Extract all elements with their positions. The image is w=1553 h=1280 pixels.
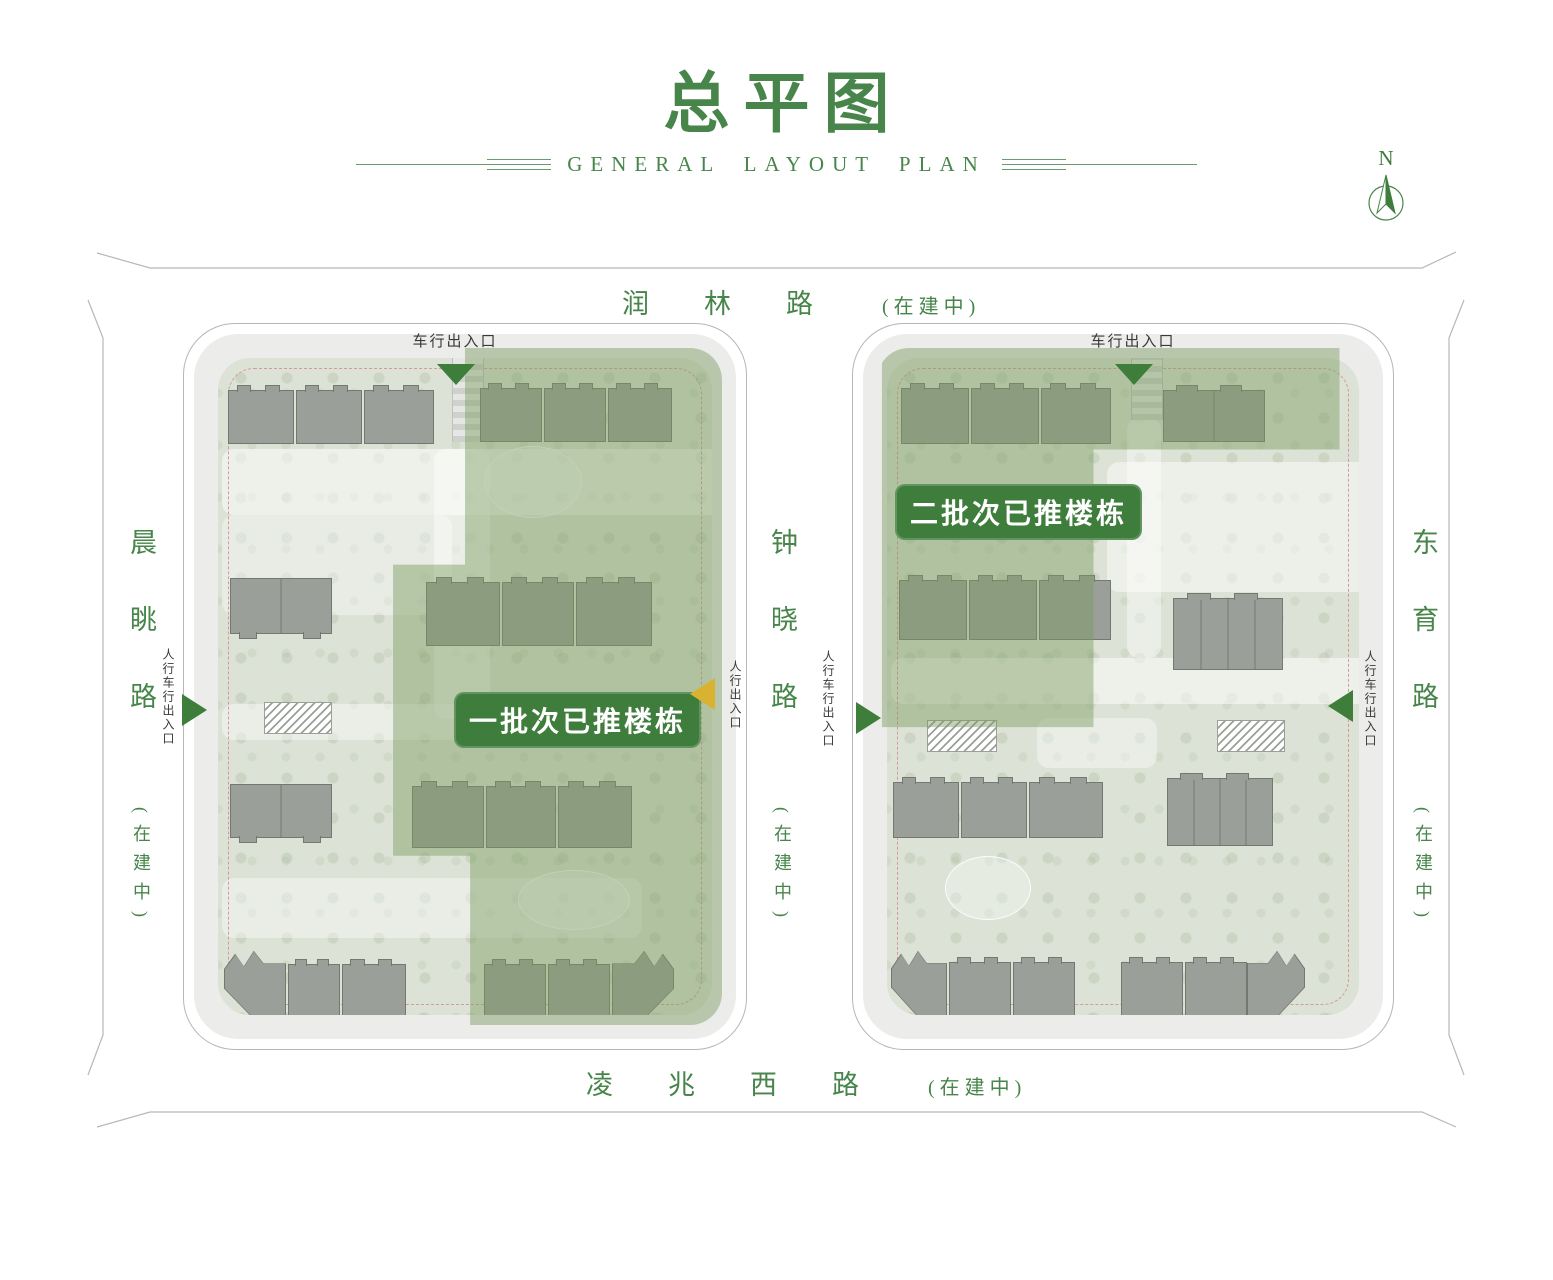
batch2-badge: 二批次已推楼栋	[895, 484, 1142, 540]
site-block-west: 一批次已推楼栋	[183, 323, 747, 1050]
building	[230, 578, 332, 634]
entrance-label-pedestrian: 人行出入口	[727, 660, 744, 730]
parking-hatch	[1217, 720, 1285, 752]
entrance-label-mixed-west: 人行车行出入口	[160, 648, 177, 746]
building	[961, 782, 1027, 838]
general-layout-plan: 总平图 GENERAL LAYOUT PLAN N 润林路 (在建中) 凌兆西路…	[0, 0, 1553, 1280]
road-name: 钟晓路	[767, 528, 797, 759]
entrance-label-vehicle-west: 车行出入口	[400, 330, 510, 351]
building	[893, 782, 959, 838]
entrance-label-mixed-mid: 人行车行出入口	[820, 650, 837, 748]
road-label-zhongxiao: 钟晓路 (在建中)	[763, 528, 802, 928]
building	[364, 390, 434, 444]
entrance-label-mixed-east: 人行车行出入口	[1362, 650, 1379, 748]
road-name: 东育路	[1408, 528, 1438, 759]
road-name: 凌兆西路	[586, 1063, 914, 1102]
building	[1013, 962, 1075, 1015]
building	[288, 964, 340, 1015]
batch1-badge: 一批次已推楼栋	[454, 692, 701, 748]
road-status: (在建中)	[882, 290, 980, 319]
road-status: (在建中)	[131, 807, 151, 928]
road-status: (在建中)	[1413, 807, 1433, 928]
site-block-east: 二批次已推楼栋	[852, 323, 1394, 1050]
entrance-arrow-down-west	[437, 364, 475, 385]
building	[296, 390, 362, 444]
building	[949, 962, 1011, 1015]
building	[1121, 962, 1183, 1015]
building	[228, 390, 294, 444]
road-label-dongyu: 东育路 (在建中)	[1404, 528, 1443, 928]
road-label-runlin: 润林路 (在建中)	[622, 282, 980, 321]
entrance-arrow-down-east	[1115, 364, 1153, 385]
entrance-label-vehicle-east: 车行出入口	[1078, 330, 1188, 351]
road-status: (在建中)	[772, 807, 792, 928]
road-name: 晨眺路	[126, 528, 156, 759]
building	[1167, 778, 1273, 846]
entrance-arrow-left-east	[1328, 690, 1353, 722]
road-label-chentiao: 晨眺路 (在建中)	[122, 528, 161, 928]
building	[1029, 782, 1103, 838]
building	[230, 784, 332, 838]
road-name: 润林路	[622, 282, 868, 321]
road-label-lingzhaoxi: 凌兆西路 (在建中)	[586, 1063, 1026, 1102]
entrance-arrow-right-west	[182, 694, 207, 726]
parking-hatch	[264, 702, 332, 734]
road-status: (在建中)	[928, 1071, 1026, 1100]
building	[1185, 962, 1247, 1015]
entrance-arrow-left-pedestrian	[690, 678, 715, 710]
entrance-arrow-right-mid	[856, 702, 881, 734]
building	[342, 964, 406, 1015]
building	[1173, 598, 1283, 670]
